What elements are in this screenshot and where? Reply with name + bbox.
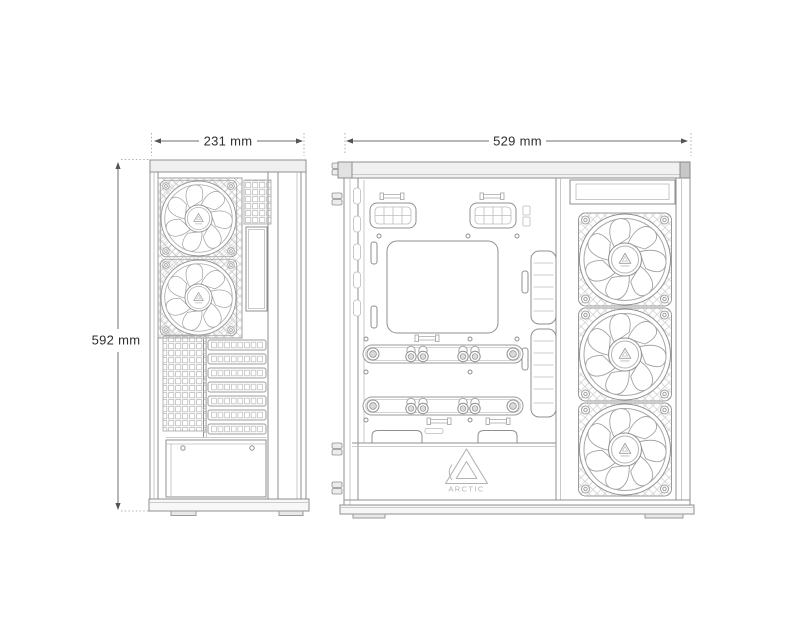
side-top-panel	[338, 162, 690, 178]
dimension-depth-label: 529 mm	[493, 134, 542, 149]
dimension-height-label: 592 mm	[92, 333, 141, 348]
drive-mount-rail	[363, 345, 523, 363]
pci-slot-5	[208, 396, 266, 406]
pci-slot-3	[208, 368, 266, 378]
front-fan-icon-3	[579, 403, 672, 496]
psu-bay	[166, 438, 266, 498]
io-connector	[523, 206, 530, 215]
cable-grommet	[470, 203, 516, 228]
thumbscrew-icon	[332, 482, 342, 494]
rear-fan-icon-2	[160, 259, 237, 336]
side-view-drawing: ARCTIC	[332, 162, 694, 518]
rear-side-panel-strip	[246, 227, 267, 311]
rear-top-vent-mesh	[244, 180, 271, 224]
rear-fan-icon-1	[160, 180, 237, 257]
dimension-width-label: 231 mm	[204, 134, 253, 149]
front-fan-section	[570, 180, 675, 496]
arctic-logo-text: ARCTIC	[448, 485, 484, 494]
io-connector	[523, 217, 530, 226]
top-panel-end-cap	[680, 162, 690, 178]
cpu-cooler-cutout	[387, 241, 498, 333]
cable-tie-slot	[522, 271, 528, 293]
pci-slot-7	[208, 424, 266, 434]
cable-tie-slot	[371, 306, 377, 328]
cable-tie-slot	[371, 242, 377, 264]
case-foot	[645, 514, 683, 518]
side-base	[340, 505, 694, 514]
shroud-tab	[425, 429, 443, 434]
thumbscrew-icon	[332, 443, 342, 455]
rear-lower-vent-mesh	[163, 335, 206, 431]
case-foot	[353, 514, 385, 518]
case-foot	[279, 511, 303, 516]
pci-slot-2	[208, 354, 266, 364]
case-dimension-diagram: ARCTIC 231 mm 592 mm	[0, 0, 800, 640]
pci-slot-1	[208, 340, 266, 350]
drive-mount-rail	[363, 397, 523, 415]
pci-slot-6	[208, 410, 266, 420]
rear-view-drawing	[149, 160, 309, 516]
front-fan-icon-1	[579, 213, 672, 306]
cable-grommet	[370, 203, 416, 228]
case-foot	[171, 511, 196, 516]
cable-routing-channel	[531, 251, 556, 417]
rear-top-panel	[150, 160, 306, 172]
technical-drawing-page: ARCTIC 231 mm 592 mm	[0, 0, 800, 640]
pci-slot-4	[208, 382, 266, 392]
top-panel-end-cap	[338, 162, 352, 178]
front-fan-icon-2	[579, 308, 672, 401]
rear-base	[149, 499, 309, 511]
thumbscrew-icon	[332, 193, 342, 205]
